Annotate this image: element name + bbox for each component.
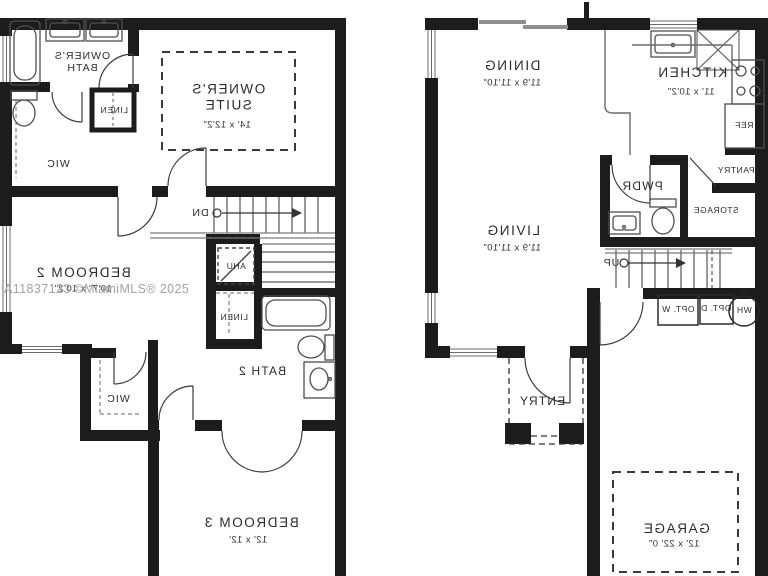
bedroom2-label: BEDROOM 2	[35, 265, 130, 281]
bedroom3-label: BEDROOM 3	[203, 515, 298, 531]
pantry-label: PANTRY	[717, 166, 754, 176]
pwdr-label: PWDR	[621, 180, 662, 194]
ahu-label: AHU	[226, 262, 246, 272]
wic-owner-label: WIC	[46, 158, 69, 170]
water-heater-label: WH	[736, 306, 751, 316]
owners-bath-label: OWNER'S BATH	[47, 50, 117, 74]
living-dims: 11'9 x 11'10"	[483, 244, 541, 255]
bath2-label: BATH 2	[238, 365, 286, 379]
powder-room-fixtures	[609, 199, 676, 234]
owners-suite-dims: 14' x 12'2"	[203, 121, 251, 132]
linen-upper-label: LINEN	[100, 106, 128, 116]
linen-hall-label: LINEN	[220, 313, 248, 323]
opt-washer-label: OPT. W	[660, 305, 696, 315]
owners-suite-label: OWNER'S SUITE	[182, 81, 274, 112]
opt-dryer-label: OPT. D	[698, 304, 734, 314]
garage-label: GARAGE	[642, 521, 709, 537]
mls-watermark: A11837123 ©MiamiMLS® 2025	[4, 282, 189, 296]
garage-dims: 12' x 22' 0"	[649, 540, 700, 551]
ref-label: REF	[735, 121, 754, 131]
dining-label: DINING	[484, 58, 541, 74]
entry-label: ENTRY	[519, 395, 565, 409]
floorplan-canvas: OWNER'S BATH LINEN WIC OWNER'S SUITE 14'…	[0, 0, 768, 576]
stairs-dn-label: DN	[191, 207, 208, 219]
bath2-fixtures	[262, 296, 335, 398]
stairs-up-label: UP	[603, 257, 620, 269]
sliding-glass-door	[479, 20, 568, 29]
main-floor-walls	[425, 2, 768, 576]
kitchen-dims: 11' x 10'2"	[667, 88, 714, 99]
dining-dims: 11'9 x 11'10"	[483, 79, 541, 90]
living-label: LIVING	[486, 223, 540, 239]
storage-label: STORAGE	[693, 206, 739, 216]
kitchen-label: KITCHEN	[657, 65, 727, 81]
stairs-main-floor	[605, 249, 732, 288]
bedroom3-dims: 12' x 12'	[229, 536, 267, 547]
wic-bedroom2-label: WIC	[106, 393, 129, 405]
